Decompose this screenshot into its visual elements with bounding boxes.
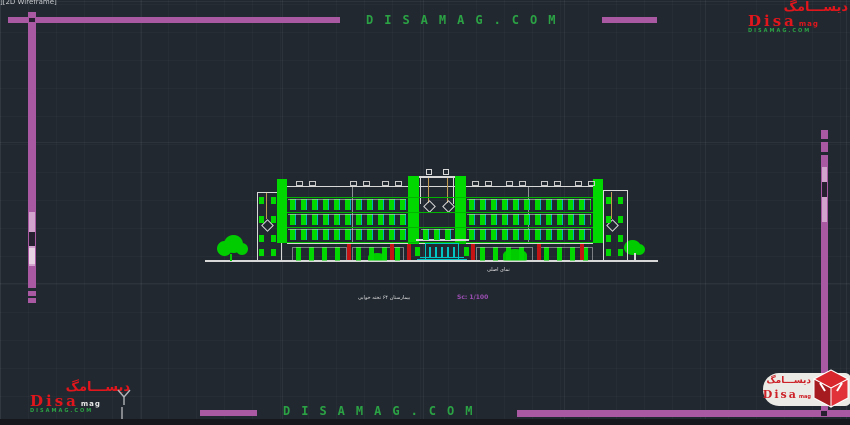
roof-notch <box>309 181 316 186</box>
bay-frame-line <box>420 178 421 204</box>
wing-window <box>618 216 623 223</box>
wing-window <box>618 235 623 242</box>
ground-floor-windows <box>352 247 404 261</box>
badge-persian-text: ديســـامگ <box>766 376 811 386</box>
pilaster <box>277 179 287 243</box>
central-tower <box>408 176 419 244</box>
red-column <box>407 244 411 260</box>
wing-window <box>271 216 276 223</box>
entrance-side-window <box>415 247 420 256</box>
roof-notch <box>575 181 582 186</box>
window-row <box>288 229 406 240</box>
roof-notch <box>296 181 303 186</box>
entrance-step <box>417 259 467 260</box>
ground-floor-windows <box>292 247 347 261</box>
roof-notch <box>541 181 548 186</box>
wing-window <box>606 216 611 223</box>
window-row <box>288 214 406 225</box>
red-column <box>390 244 394 260</box>
screen-edge <box>0 419 850 425</box>
wing-window <box>259 197 264 204</box>
red-column <box>580 244 584 260</box>
floor-slab-line <box>287 242 593 243</box>
wing-window <box>259 216 264 223</box>
pulley-support <box>426 169 432 175</box>
roof-notch <box>554 181 561 186</box>
wing-window <box>618 197 623 204</box>
wing-window <box>618 249 623 256</box>
tree-trunk <box>634 253 636 261</box>
tree <box>236 243 248 255</box>
wing-window <box>259 249 264 256</box>
badge-brand-text: Disa <box>763 388 798 401</box>
hanging-ornament <box>423 200 436 213</box>
drawing-title: نمای اصلی <box>487 267 510 273</box>
drawing-scale: Sc: 1/100 <box>457 294 488 301</box>
wing-window <box>606 235 611 242</box>
window-row <box>467 214 591 225</box>
entrance-side-window <box>464 247 469 256</box>
window-row <box>421 229 454 240</box>
window-row <box>288 199 406 210</box>
wing-window <box>606 249 611 256</box>
roof-notch <box>472 181 479 186</box>
disa-cube-logo-icon <box>811 369 850 409</box>
pulley-support <box>443 169 449 175</box>
pilaster <box>593 179 603 243</box>
roof-notch <box>588 181 595 186</box>
ground-floor-windows <box>476 247 533 261</box>
wing-window <box>271 235 276 242</box>
central-tower <box>455 176 466 244</box>
roof-notch <box>395 181 402 186</box>
floor-slab-line <box>287 227 593 228</box>
red-column <box>471 244 475 260</box>
tree-trunk <box>230 254 232 261</box>
roof-notch <box>485 181 492 186</box>
bay-top-beam <box>419 176 455 178</box>
parapet-line <box>287 186 593 187</box>
roof-notch <box>519 181 526 186</box>
badge-brand-suffix: mag <box>799 394 811 401</box>
wing-window <box>259 235 264 242</box>
hanging-cable <box>266 193 267 219</box>
wing-window <box>271 249 276 256</box>
window-row <box>467 229 591 240</box>
window-row <box>467 199 591 210</box>
floor-slab-line <box>287 212 593 213</box>
roof-notch <box>350 181 357 186</box>
red-column <box>537 244 541 260</box>
bay-frame-line <box>453 178 454 204</box>
autocad-viewport: ][2D Wireframe] DISAMAG.COM DISAMAG.COM … <box>0 0 850 425</box>
roof-notch <box>363 181 370 186</box>
wing-window <box>271 197 276 204</box>
roof-notch <box>382 181 389 186</box>
entrance-step <box>420 257 464 258</box>
red-column <box>347 244 351 260</box>
hanging-cable <box>611 192 612 219</box>
drawing-caption: بیمارستان ۶۴ تخته خوابی <box>358 295 410 301</box>
roof-notch <box>506 181 513 186</box>
wing-window <box>606 197 611 204</box>
ground-floor-windows <box>540 247 593 261</box>
building-elevation-drawing[interactable]: نمای اصلی بیمارستان ۶۴ تخته خوابی Sc: 1/… <box>0 0 850 425</box>
frame-corner-marker <box>821 411 827 416</box>
floor-slab-line <box>287 197 593 198</box>
